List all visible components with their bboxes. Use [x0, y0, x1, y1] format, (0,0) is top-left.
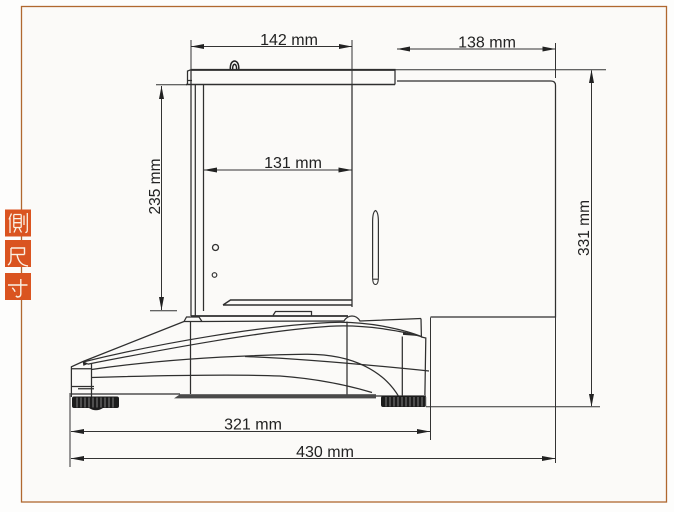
svg-text:131 mm: 131 mm: [264, 155, 322, 172]
svg-text:138 mm: 138 mm: [458, 35, 516, 52]
svg-text:321 mm: 321 mm: [224, 416, 282, 433]
svg-text:142 mm: 142 mm: [260, 32, 318, 49]
svg-text:430 mm: 430 mm: [296, 444, 354, 461]
svg-text:235 mm: 235 mm: [147, 159, 164, 215]
svg-text:331 mm: 331 mm: [576, 200, 593, 256]
